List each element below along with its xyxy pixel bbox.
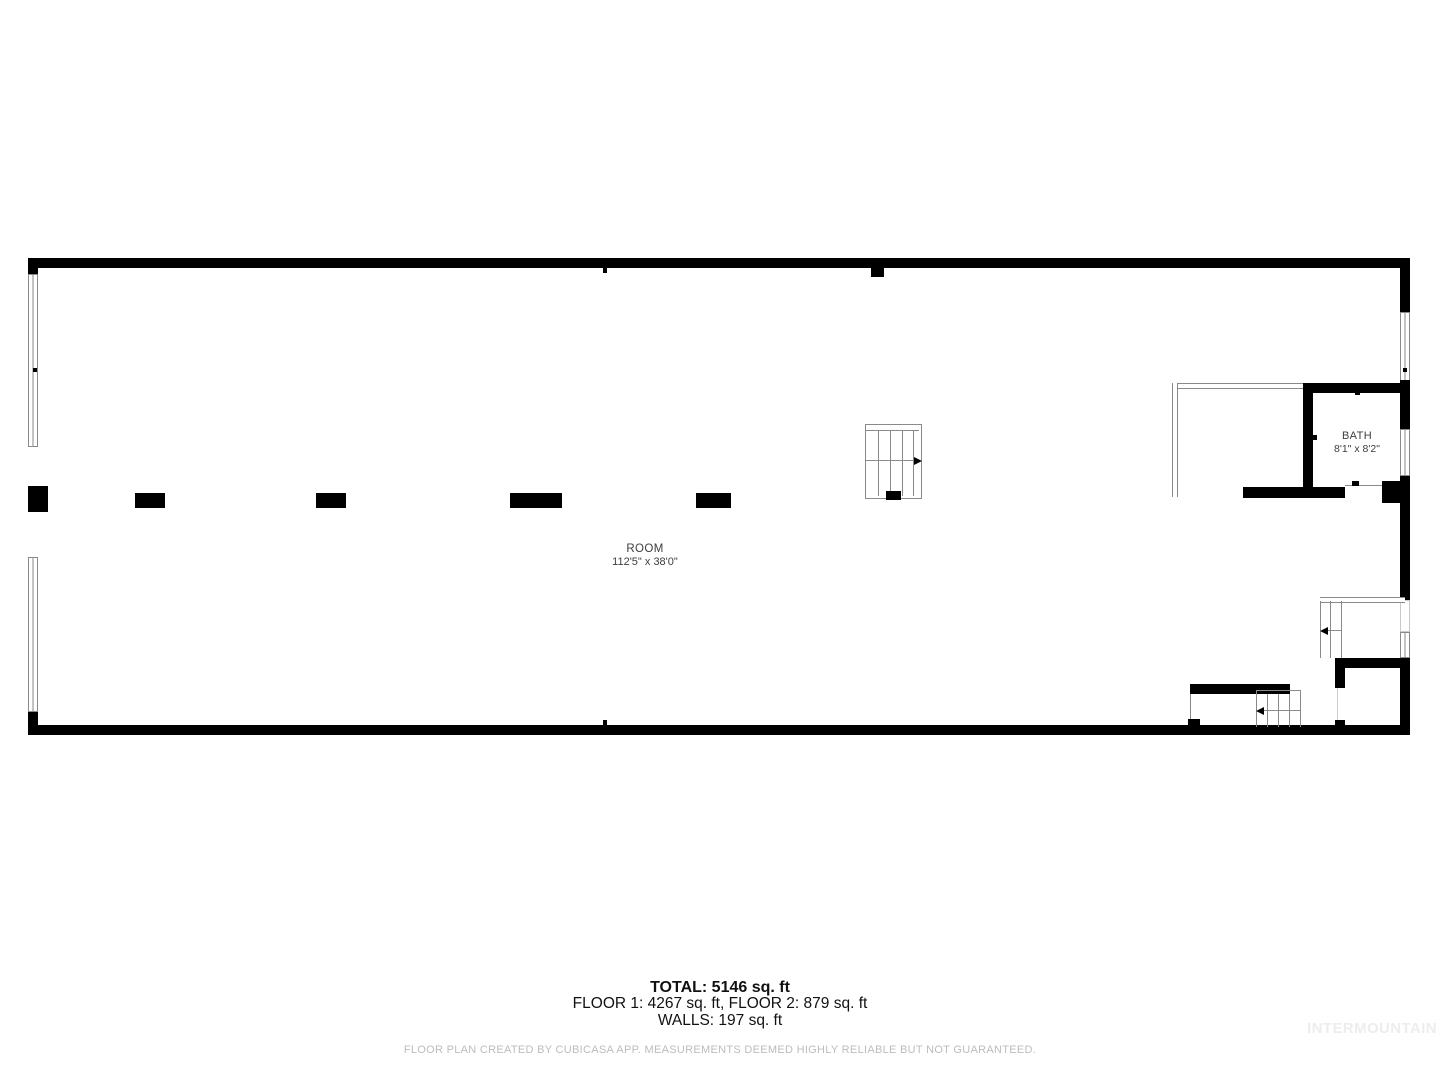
door-threshold-line: [1345, 485, 1382, 486]
floor-plan-canvas: ROOM 112'5" x 38'0" BATH 8'1" x 8'2": [0, 0, 1440, 1080]
stair-direction-arrow: [1320, 627, 1328, 635]
watermark-text: INTERMOUNTAIN: [1307, 1020, 1437, 1037]
wall-nub: [1188, 719, 1200, 727]
bath-label: BATH 8'1" x 8'2": [1311, 430, 1403, 456]
stair-tread-line: [1300, 690, 1301, 727]
wall-tick: [1355, 391, 1360, 395]
window: [28, 274, 38, 447]
wall-bath-bottom-right: [1382, 481, 1410, 503]
wall-interior-horizontal: [1335, 658, 1410, 668]
area-summary: TOTAL: 5146 sq. ft FLOOR 1: 4267 sq. ft,…: [0, 979, 1440, 1029]
window-mullion-mark: [33, 368, 37, 372]
door-opening-line: [1337, 688, 1338, 720]
wall-exterior-left: [28, 712, 38, 735]
railing-vertical: [1172, 383, 1178, 497]
stair-direction-line: [866, 460, 915, 461]
wall-stair-top: [1190, 684, 1290, 694]
wall-opening-right: [1400, 600, 1410, 632]
stair-tread-line: [902, 430, 903, 496]
stair-top-edge: [1320, 597, 1405, 603]
walls-area-text: WALLS: 197 sq. ft: [0, 1013, 1440, 1030]
wall-tick: [603, 268, 607, 273]
wall-bath-bottom: [1243, 487, 1345, 498]
wall-stub-stair: [886, 491, 901, 500]
stair-direction-line: [1263, 710, 1300, 711]
room-name: ROOM: [565, 543, 725, 556]
wall-exterior-bottom: [28, 725, 1410, 735]
bath-name: BATH: [1311, 430, 1403, 443]
wall-tick: [603, 720, 607, 725]
wall-interior-vertical: [1335, 668, 1345, 688]
stair-direction-arrow: [914, 457, 922, 465]
wall-exterior-top: [28, 258, 1410, 268]
window: [28, 557, 38, 712]
railing-horizontal: [1172, 383, 1303, 389]
stair-direction-arrow: [1256, 707, 1264, 715]
window-mullion-mark: [1403, 368, 1407, 372]
floor-plan-page: { "plan": { "room": { "name": "ROOM", "d…: [0, 0, 1440, 1080]
wall-stub: [1335, 720, 1345, 728]
wall-exterior-left: [28, 258, 38, 274]
stair-landing-line: [866, 430, 919, 431]
total-area-text: TOTAL: 5146 sq. ft: [0, 979, 1440, 996]
column-post: [696, 493, 731, 508]
room-dimensions: 112'5" x 38'0": [565, 556, 725, 569]
door-tick: [1352, 481, 1359, 486]
stair-tread-line: [878, 430, 879, 496]
column-post: [135, 493, 165, 508]
stair-direction-line: [1327, 630, 1342, 631]
disclaimer-text: FLOOR PLAN CREATED BY CUBICASA APP. MEAS…: [0, 1044, 1440, 1056]
column-post: [510, 493, 562, 508]
wall-stub-top: [871, 268, 884, 277]
wall-stub-left: [28, 486, 48, 512]
room-label: ROOM 112'5" x 38'0": [565, 543, 725, 569]
bath-dimensions: 8'1" x 8'2": [1311, 443, 1403, 456]
stair-tread-line: [890, 430, 891, 496]
window: [1400, 632, 1410, 658]
wall-exterior-right: [1400, 658, 1410, 735]
stair-top-line: [1256, 690, 1301, 691]
wall-exterior-right: [1400, 258, 1410, 312]
floor-areas-text: FLOOR 1: 4267 sq. ft, FLOOR 2: 879 sq. f…: [0, 996, 1440, 1013]
column-post: [316, 493, 346, 508]
